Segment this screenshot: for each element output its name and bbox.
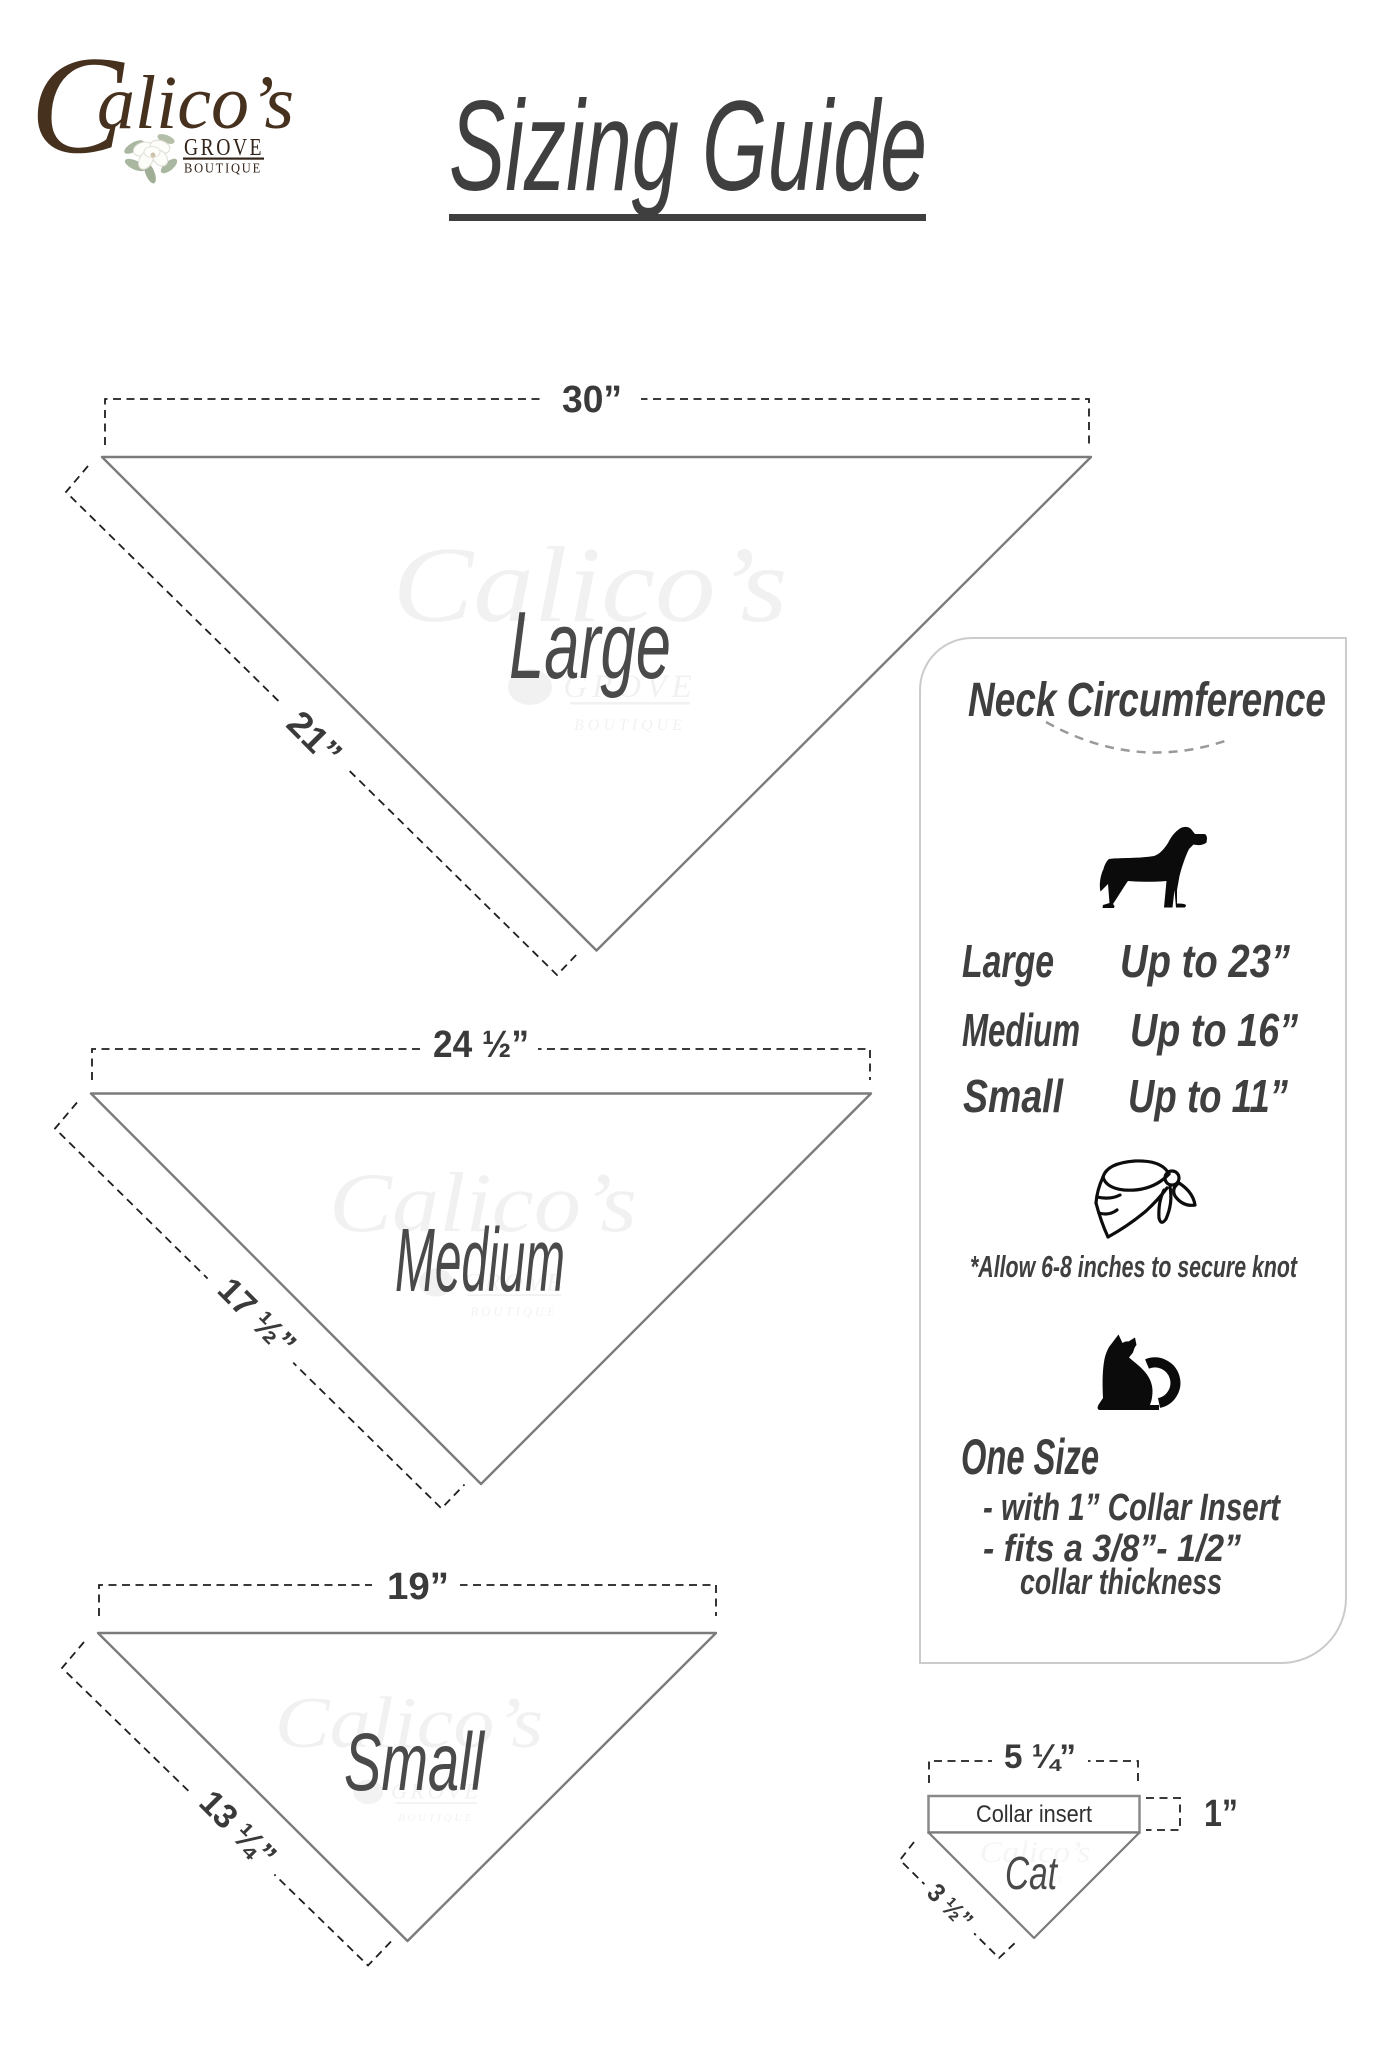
svg-text:*Allow 6-8 inches to secure kn: *Allow 6-8 inches to secure knot: [970, 1249, 1298, 1284]
svg-text:Up to 23”: Up to 23”: [1120, 935, 1290, 987]
svg-text:19”: 19”: [387, 1566, 449, 1608]
svg-text:BOUTIQUE: BOUTIQUE: [184, 162, 262, 177]
svg-text:Sizing Guide: Sizing Guide: [449, 75, 927, 218]
svg-text:30”: 30”: [562, 379, 622, 421]
svg-text:1”: 1”: [1204, 1793, 1238, 1835]
svg-text:Small: Small: [344, 1717, 486, 1808]
svg-text:collar thickness: collar thickness: [1020, 1561, 1222, 1602]
svg-text:One Size: One Size: [961, 1429, 1099, 1485]
svg-text:Large: Large: [962, 935, 1054, 987]
svg-text:Medium: Medium: [962, 1004, 1080, 1056]
svg-text:BOUTIQUE: BOUTIQUE: [398, 1812, 474, 1824]
svg-text:Neck Circumference: Neck Circumference: [968, 674, 1326, 727]
svg-text:alico’s: alico’s: [97, 61, 294, 145]
svg-text:5 ¼”: 5 ¼”: [1004, 1738, 1076, 1776]
svg-text:Up to 11”: Up to 11”: [1128, 1070, 1288, 1122]
svg-text:Cat: Cat: [1005, 1847, 1059, 1899]
svg-text:Small: Small: [963, 1070, 1064, 1122]
svg-text:BOUTIQUE: BOUTIQUE: [574, 717, 686, 734]
svg-text:GROVE: GROVE: [184, 135, 264, 161]
svg-text:Up to 16”: Up to 16”: [1130, 1004, 1298, 1056]
svg-text:24 ½”: 24 ½”: [433, 1024, 529, 1066]
svg-text:- with 1” Collar Insert: - with 1” Collar Insert: [983, 1487, 1281, 1529]
svg-text:Large: Large: [509, 592, 671, 699]
svg-text:Collar insert: Collar insert: [976, 1801, 1092, 1828]
svg-text:Medium: Medium: [395, 1211, 565, 1311]
